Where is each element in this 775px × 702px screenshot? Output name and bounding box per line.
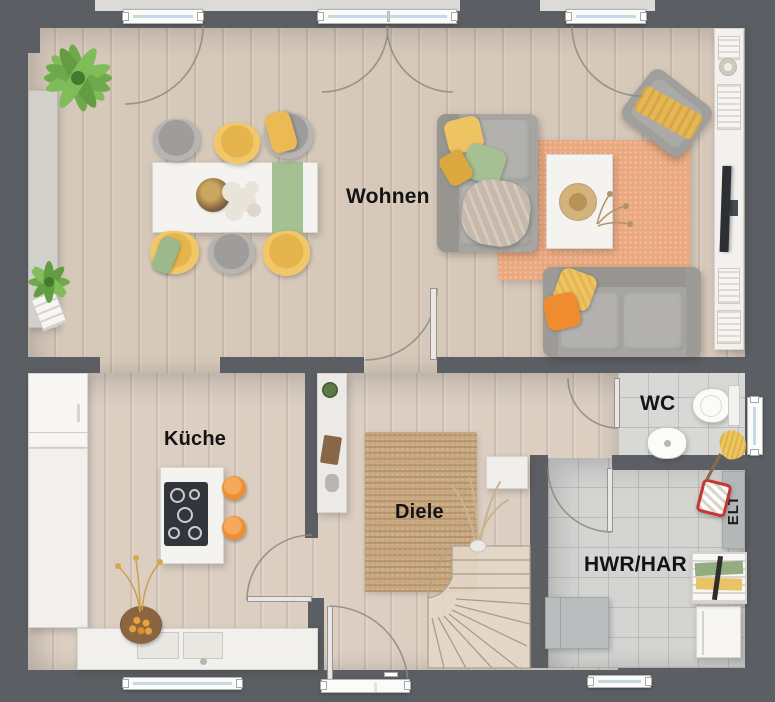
books bbox=[718, 268, 740, 304]
room-label-wohnen: Wohnen bbox=[346, 185, 430, 209]
books bbox=[717, 310, 741, 344]
shelf-decor bbox=[320, 435, 342, 465]
utility-cabinet bbox=[545, 597, 609, 649]
bar-stool bbox=[222, 476, 246, 500]
room-label-hwr: HWR/HAR bbox=[584, 553, 687, 577]
tray bbox=[559, 183, 597, 221]
pillow-orange bbox=[542, 291, 583, 332]
coffee-table bbox=[546, 154, 613, 249]
hall-cabinet bbox=[486, 456, 528, 489]
centerpiece-bowl bbox=[196, 178, 230, 212]
door-leaf bbox=[607, 468, 613, 532]
door-leaf bbox=[430, 288, 437, 360]
terrace-double-door bbox=[318, 9, 457, 24]
cooktop bbox=[164, 482, 208, 546]
refrigerator bbox=[28, 373, 88, 448]
hall-shelf bbox=[317, 373, 347, 513]
room-label-wc: WC bbox=[640, 392, 675, 416]
door-leaf bbox=[327, 606, 333, 686]
books bbox=[717, 84, 741, 130]
decor-jar bbox=[719, 58, 737, 76]
toilet bbox=[692, 388, 730, 423]
wall-living-south-a bbox=[28, 357, 100, 373]
floor-plan: ELT bbox=[0, 0, 775, 702]
bar-stool bbox=[222, 516, 246, 540]
washbasin bbox=[647, 427, 687, 459]
wc-window bbox=[747, 397, 763, 455]
wall-living-south-c bbox=[437, 357, 745, 373]
books bbox=[718, 36, 740, 60]
wall-living-south-b bbox=[220, 357, 364, 373]
terrace-door bbox=[566, 9, 646, 24]
shelf-vase bbox=[325, 474, 339, 492]
wall-left bbox=[0, 0, 28, 702]
tv-stand bbox=[730, 200, 738, 216]
fruit-bowl bbox=[120, 606, 162, 644]
faucet bbox=[200, 658, 207, 665]
terrace-door bbox=[123, 9, 203, 24]
door-handle bbox=[384, 672, 398, 677]
wall-right bbox=[745, 0, 775, 702]
room-label-diele: Diele bbox=[395, 501, 444, 524]
table-runner bbox=[272, 162, 303, 233]
utility-window bbox=[588, 675, 651, 688]
shelf-plant bbox=[322, 382, 338, 398]
kitchen-window bbox=[123, 677, 242, 690]
entrance-door bbox=[321, 679, 410, 693]
drying-rack bbox=[691, 552, 747, 604]
wall-corner-pillar bbox=[0, 0, 40, 53]
door-leaf bbox=[247, 596, 312, 602]
washing-machine bbox=[696, 606, 741, 658]
room-label-kueche: Küche bbox=[164, 428, 226, 451]
door-leaf bbox=[614, 378, 620, 428]
kitchen-sink bbox=[183, 632, 223, 659]
kitchen-counter-left bbox=[28, 448, 88, 628]
kitchen-island bbox=[160, 467, 224, 564]
toilet-cistern bbox=[728, 385, 740, 426]
